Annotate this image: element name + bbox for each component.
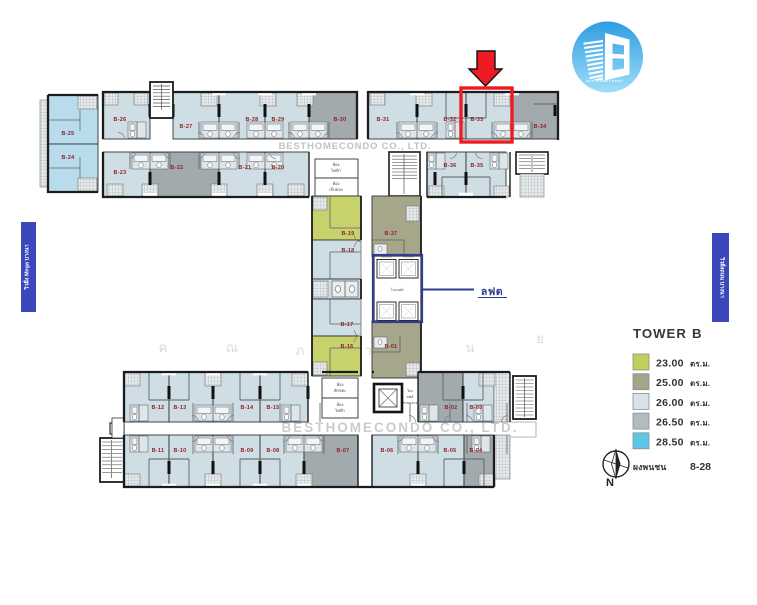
svg-text:28.50: 28.50 xyxy=(656,436,684,448)
svg-text:B-22: B-22 xyxy=(171,165,184,171)
svg-text:B-04: B-04 xyxy=(470,448,483,454)
svg-text:ลฟต์: ลฟต์ xyxy=(407,395,415,399)
svg-text:B-20: B-20 xyxy=(272,165,285,171)
svg-text:B-01: B-01 xyxy=(385,344,398,350)
svg-text:B-35: B-35 xyxy=(471,163,484,169)
svg-text:B-15: B-15 xyxy=(267,405,280,411)
svg-text:B-36: B-36 xyxy=(444,163,457,169)
svg-text:B-16: B-16 xyxy=(341,344,354,350)
svg-text:ตร.ม.: ตร.ม. xyxy=(690,419,710,428)
svg-text:B-08: B-08 xyxy=(267,448,280,454)
svg-text:BESTHOMECONDO CO., LTD.: BESTHOMECONDO CO., LTD. xyxy=(279,141,432,152)
svg-text:B-33: B-33 xyxy=(471,117,484,123)
svg-text:ห้อง: ห้อง xyxy=(333,181,340,186)
svg-text:ภ: ภ xyxy=(296,343,305,358)
svg-text:า: า xyxy=(364,343,371,358)
svg-text:B-05: B-05 xyxy=(444,448,457,454)
svg-text:B: B xyxy=(692,326,703,341)
svg-text:ตร.ม.: ตร.ม. xyxy=(690,399,710,408)
svg-text:น: น xyxy=(466,340,475,355)
svg-text:ณ: ณ xyxy=(226,340,238,355)
svg-text:ตร.ม.: ตร.ม. xyxy=(690,438,710,447)
svg-text:ส่วนกลาง: ส่วนกลาง xyxy=(403,401,418,405)
svg-text:B-21: B-21 xyxy=(239,165,252,171)
svg-text:วิวฝั่ง Mega บางนา: วิวฝั่ง Mega บางนา xyxy=(23,244,31,290)
svg-text:ห้อง: ห้อง xyxy=(333,162,340,167)
svg-text:ไฟฟ้า: ไฟฟ้า xyxy=(330,168,341,173)
svg-text:B-03: B-03 xyxy=(470,405,483,411)
svg-text:วิวฝั่งถนน บางนา: วิวฝั่งถนน บางนา xyxy=(719,256,727,297)
svg-text:B-24: B-24 xyxy=(62,155,75,161)
svg-text:N: N xyxy=(606,477,614,489)
svg-text:ห้อง: ห้อง xyxy=(337,402,344,407)
svg-text:B-29: B-29 xyxy=(272,117,285,123)
svg-text:ลฟต: ลฟต xyxy=(481,286,503,298)
svg-text:B-02: B-02 xyxy=(445,405,458,411)
svg-text:26.50: 26.50 xyxy=(656,417,684,429)
svg-text:B-26: B-26 xyxy=(114,117,127,123)
svg-text:BESTHOMECONDO: BESTHOMECONDO xyxy=(587,79,624,83)
svg-text:B-28: B-28 xyxy=(246,117,259,123)
svg-text:B-27: B-27 xyxy=(180,124,193,130)
svg-text:โถงลฟต์: โถงลฟต์ xyxy=(391,287,405,292)
svg-text:B-18: B-18 xyxy=(342,248,355,254)
svg-text:26.00: 26.00 xyxy=(656,397,684,409)
svg-text:B-17: B-17 xyxy=(341,322,354,328)
svg-text:B-11: B-11 xyxy=(152,448,165,454)
svg-text:B-06: B-06 xyxy=(381,448,394,454)
svg-text:ย: ย xyxy=(536,331,544,346)
svg-text:B-13: B-13 xyxy=(174,405,187,411)
svg-text:8-28: 8-28 xyxy=(690,461,711,473)
svg-text:ตร.ม.: ตร.ม. xyxy=(690,379,710,388)
svg-text:B-12: B-12 xyxy=(152,405,165,411)
svg-text:B-09: B-09 xyxy=(241,448,254,454)
svg-text:พักขยะ: พักขยะ xyxy=(334,388,346,393)
svg-text:ไฟฟ้า: ไฟฟ้า xyxy=(334,408,345,413)
svg-text:B-23: B-23 xyxy=(114,170,127,176)
svg-text:ห้อง: ห้อง xyxy=(337,382,344,387)
svg-text:B-31: B-31 xyxy=(377,117,390,123)
svg-text:B-10: B-10 xyxy=(174,448,187,454)
svg-text:โถง: โถง xyxy=(407,388,413,393)
svg-text:B-37: B-37 xyxy=(385,231,398,237)
svg-text:B-32: B-32 xyxy=(444,117,457,123)
svg-text:B-25: B-25 xyxy=(62,131,75,137)
svg-text:B-07: B-07 xyxy=(337,448,350,454)
svg-text:23.00: 23.00 xyxy=(656,358,684,370)
svg-text:เก็บของ: เก็บของ xyxy=(329,186,342,192)
svg-text:ผงพนชน: ผงพนชน xyxy=(633,462,666,472)
svg-text:B-19: B-19 xyxy=(342,231,355,237)
svg-text:B-34: B-34 xyxy=(534,124,547,130)
svg-text:25.00: 25.00 xyxy=(656,377,684,389)
svg-text:TOWER: TOWER xyxy=(633,326,687,341)
svg-text:ค: ค xyxy=(159,340,168,355)
svg-text:ตร.ม.: ตร.ม. xyxy=(690,360,710,369)
svg-text:B-14: B-14 xyxy=(241,405,254,411)
svg-text:B-30: B-30 xyxy=(334,117,347,123)
